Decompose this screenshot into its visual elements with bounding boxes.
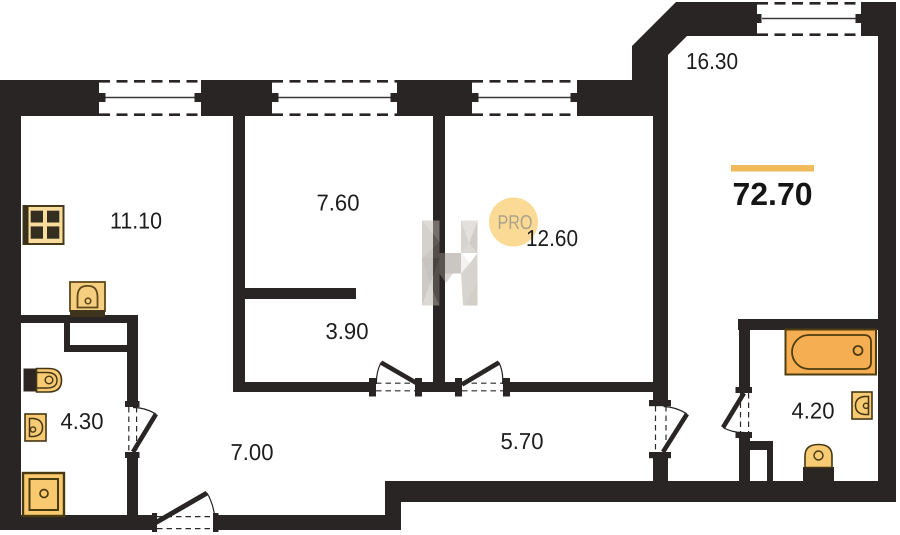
svg-text:72.70: 72.70 — [732, 176, 812, 212]
svg-text:12.60: 12.60 — [526, 225, 578, 251]
svg-text:16.30: 16.30 — [686, 48, 738, 74]
svg-text:11.10: 11.10 — [110, 208, 162, 234]
svg-text:7.60: 7.60 — [317, 190, 360, 216]
svg-text:4.30: 4.30 — [61, 408, 104, 434]
svg-text:4.20: 4.20 — [792, 398, 835, 424]
svg-text:7.00: 7.00 — [231, 439, 274, 465]
svg-text:3.90: 3.90 — [326, 318, 369, 344]
svg-text:5.70: 5.70 — [501, 428, 544, 454]
